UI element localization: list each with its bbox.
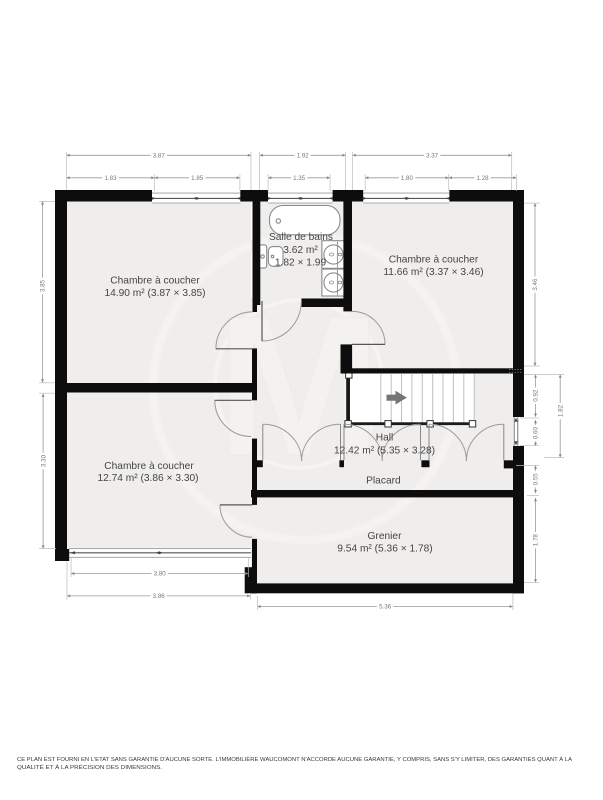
svg-text:3.30: 3.30 [40, 454, 47, 467]
svg-text:3.46: 3.46 [532, 278, 539, 291]
svg-text:1.82: 1.82 [557, 404, 564, 417]
svg-text:1.92: 1.92 [297, 153, 310, 160]
svg-text:Grenier: Grenier [368, 531, 403, 542]
svg-text:Placard: Placard [366, 476, 401, 487]
svg-text:CE PLAN EST FOURNI EN L'ETAT S: CE PLAN EST FOURNI EN L'ETAT SANS GARANT… [17, 756, 572, 763]
svg-text:11.66 m² (3.37 × 3.46): 11.66 m² (3.37 × 3.46) [383, 267, 483, 278]
svg-text:0.55: 0.55 [533, 473, 540, 486]
svg-text:14.90 m² (3.87 × 3.85): 14.90 m² (3.87 × 3.85) [104, 288, 205, 299]
svg-text:1.35: 1.35 [293, 175, 306, 182]
svg-text:Salle de bains: Salle de bains [269, 232, 333, 243]
svg-text:1.80: 1.80 [401, 175, 414, 182]
svg-text:1.83: 1.83 [104, 175, 117, 182]
svg-text:1.28: 1.28 [476, 175, 489, 182]
svg-text:Chambre à coucher: Chambre à coucher [389, 255, 479, 266]
svg-text:0.60: 0.60 [533, 427, 540, 440]
svg-text:Chambre à coucher: Chambre à coucher [110, 276, 200, 287]
svg-text:9.54 m² (5.36 × 1.78): 9.54 m² (5.36 × 1.78) [337, 544, 432, 555]
svg-text:12.42 m² (5.35 × 3.28): 12.42 m² (5.35 × 3.28) [334, 446, 435, 457]
svg-text:1.82 × 1.99: 1.82 × 1.99 [275, 258, 327, 269]
svg-text:0.92: 0.92 [533, 389, 540, 402]
svg-text:3.86: 3.86 [153, 593, 166, 600]
svg-text:1.85: 1.85 [191, 175, 204, 182]
svg-text:5.36: 5.36 [379, 604, 392, 611]
svg-text:QUALITÉ ET À LA PRÉCISION DES: QUALITÉ ET À LA PRÉCISION DES DIMENSIONS… [17, 764, 162, 771]
svg-text:Chambre à coucher: Chambre à coucher [104, 461, 194, 472]
svg-text:3.80: 3.80 [154, 571, 167, 578]
svg-text:3.85: 3.85 [40, 279, 47, 292]
svg-text:Hall: Hall [376, 433, 394, 444]
svg-text:12.74 m² (3.86 × 3.30): 12.74 m² (3.86 × 3.30) [97, 473, 198, 484]
svg-text:1.78: 1.78 [533, 534, 540, 547]
svg-text:3.87: 3.87 [153, 153, 166, 160]
svg-text:3.37: 3.37 [426, 153, 439, 160]
svg-text:3.62 m²: 3.62 m² [283, 245, 318, 256]
